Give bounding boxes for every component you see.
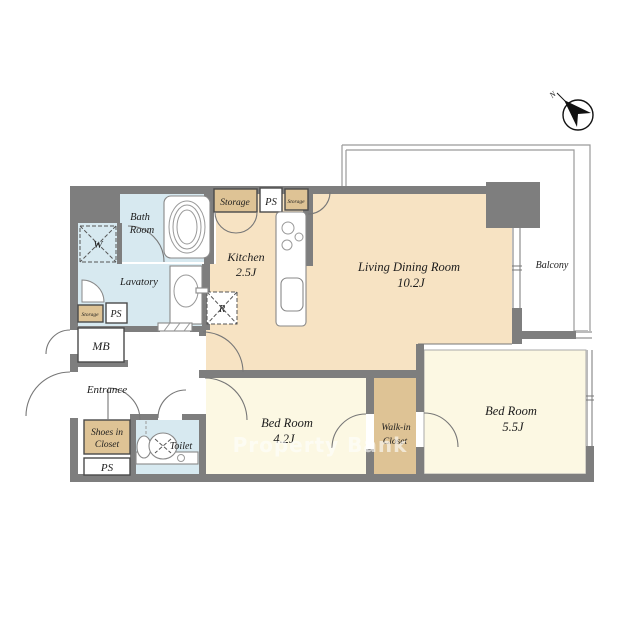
toilet-label: Toilet — [170, 441, 193, 452]
wic-label-1: Walk-in — [381, 423, 410, 433]
kitchen-size: 2.5J — [236, 265, 257, 279]
ps-top-label: PS — [264, 197, 277, 208]
watermark: Property Bank — [233, 433, 408, 457]
bedroom-2-top-window — [576, 331, 592, 339]
bedroom-1-label: Bed Room — [261, 416, 313, 430]
bedroom-2-size: 5.5J — [502, 420, 525, 434]
meter-box-door — [46, 330, 70, 354]
entrance-label: Entrance — [86, 384, 127, 396]
entrance-door — [26, 372, 70, 416]
living-size: 10.2J — [397, 276, 426, 290]
floor-plan-drawing: Living Dining Room 10.2J Kitchen 2.5J Be… — [0, 0, 640, 640]
north-arrow-icon — [564, 100, 591, 127]
storage-top-small-label: Storage — [287, 199, 305, 205]
mb-label: MB — [91, 339, 110, 353]
washer-label: W — [93, 239, 103, 251]
ps-bottom-label: PS — [100, 462, 114, 474]
living-label: Living Dining Room — [357, 260, 460, 274]
north-label: N — [547, 89, 558, 100]
kitchen-label: Kitchen — [226, 250, 264, 264]
lavatory-label: Lavatory — [119, 277, 158, 288]
bathtub — [164, 196, 210, 258]
floor-plan: Living Dining Room 10.2J Kitchen 2.5J Be… — [0, 0, 640, 640]
lavatory-sliding-door — [158, 323, 192, 331]
ps-left-label: PS — [109, 309, 121, 320]
living-window — [512, 228, 522, 308]
kitchen-sink — [281, 278, 303, 311]
bath-label-2: Room — [129, 225, 155, 236]
kitchen-counter — [276, 212, 306, 326]
shoes-closet-label-2: Closet — [95, 440, 120, 450]
pillar — [486, 182, 540, 228]
fridge-label: R — [218, 304, 225, 315]
bedroom-2-side-window — [586, 350, 594, 446]
north-indicator: N — [547, 89, 593, 130]
storage-left-label: Storage — [81, 312, 99, 318]
toilet-door — [158, 390, 186, 418]
storage-top-label: Storage — [220, 198, 250, 208]
shoes-closet-label-1: Shoes in — [91, 428, 123, 438]
bath-label-1: Bath — [130, 212, 150, 223]
lavatory-sink — [170, 266, 208, 324]
balcony-label: Balcony — [536, 260, 569, 271]
bedroom-2-label: Bed Room — [485, 404, 537, 418]
